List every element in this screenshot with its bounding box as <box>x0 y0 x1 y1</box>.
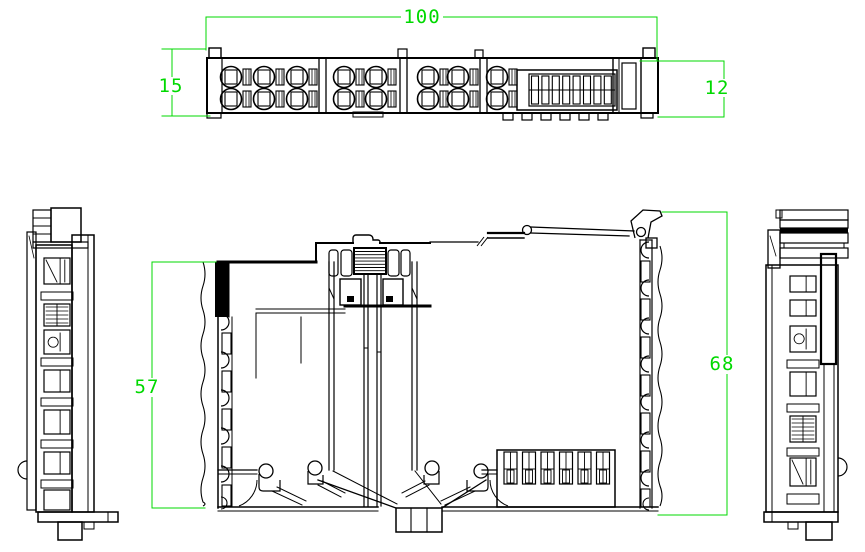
guide-rods <box>329 262 417 506</box>
dim-value-front-right-height: 68 <box>710 353 735 375</box>
terminal-group <box>418 67 479 110</box>
bus-connector <box>517 70 617 110</box>
dim-label-front-left-height: 57 <box>132 376 162 398</box>
right-edge <box>640 240 662 510</box>
top-view <box>207 48 658 120</box>
terminal-group <box>487 67 518 110</box>
dim-label-top-right-height: 12 <box>701 77 733 99</box>
left-side-view <box>18 208 118 540</box>
right-view-body <box>764 210 848 540</box>
dim-value-overall-width: 100 <box>403 6 440 28</box>
dim-value-top-right-height: 12 <box>705 77 730 99</box>
front-view <box>201 210 662 532</box>
cad-drawing: 100 15 12 57 68 <box>0 0 865 552</box>
right-side-view <box>764 210 848 540</box>
terminal-group <box>221 67 318 110</box>
left-edge <box>201 262 232 509</box>
din-clamp <box>256 248 430 378</box>
mounting-teeth <box>503 113 608 120</box>
dim-label-front-right-height: 68 <box>707 353 739 375</box>
din-rail-foot <box>218 461 508 532</box>
release-lever <box>523 210 663 248</box>
left-view-body <box>18 208 118 540</box>
output-connector <box>497 450 615 507</box>
terminal-group <box>334 67 397 110</box>
dim-value-front-left-height: 57 <box>135 376 160 398</box>
section-dividers <box>319 49 487 117</box>
dim-value-top-left-height: 15 <box>159 75 184 97</box>
dim-label-overall-width: 100 <box>401 6 443 28</box>
drawing-canvas: 100 15 12 57 68 <box>0 0 865 552</box>
dim-label-top-left-height: 15 <box>156 75 186 97</box>
